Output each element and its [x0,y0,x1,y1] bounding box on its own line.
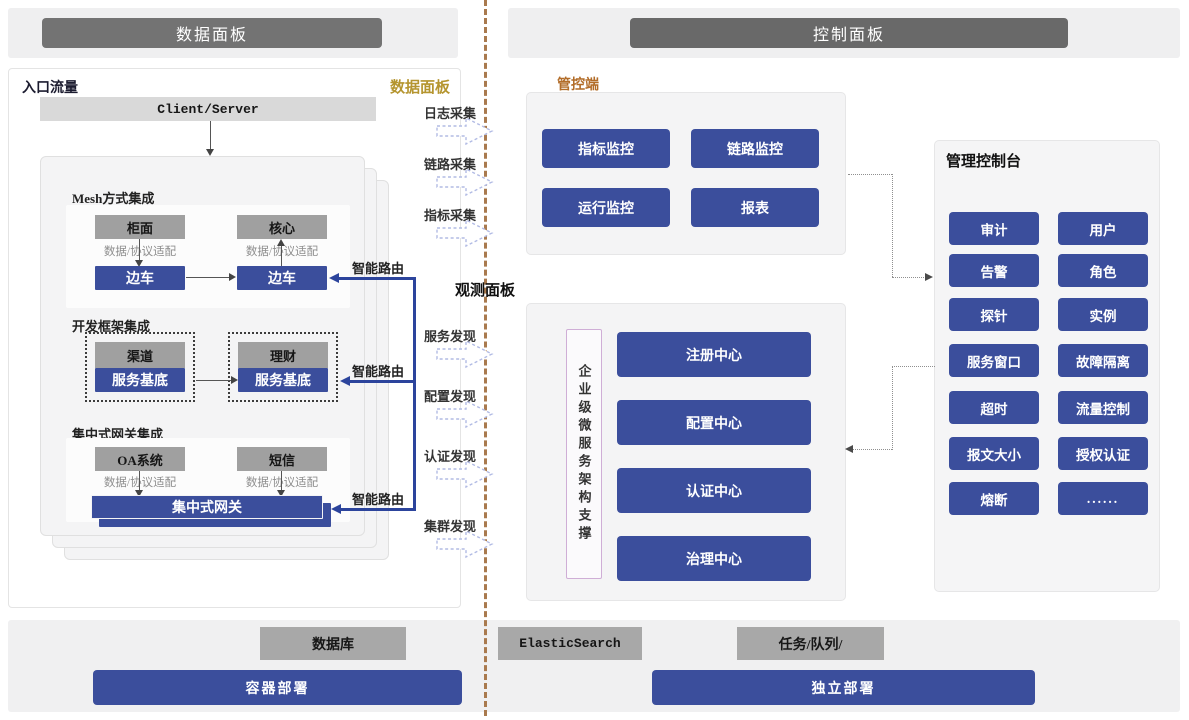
console-button-audit: 审计 [949,212,1039,245]
flow-arrow-icon [436,339,494,369]
monitor-button-runtime: 运行监控 [542,188,670,227]
center-auth: 认证中心 [617,468,811,513]
console-button-role: 角色 [1058,254,1148,287]
entry-traffic-label: 入口流量 [22,77,78,97]
console-button-fault-isolation: 故障隔离 [1058,344,1148,377]
framework-right-base-box: 服务基底 [238,368,328,392]
framework-arrow-line [196,380,232,381]
console-button-message-size: 报文大小 [949,437,1039,470]
console-button-probe: 探针 [949,298,1039,331]
flow-arrow-icon [436,167,494,197]
console-button-service-window: 服务窗口 [949,344,1039,377]
connector1-h1-line [848,174,892,175]
smart-route-trunk-line [413,277,416,510]
smart-route-branch2-head-icon [340,376,350,386]
framework-left-app-box: 渠道 [95,342,185,368]
framework-left-base-box: 服务基底 [95,368,185,392]
sidecar-right-box: 边车 [237,266,327,290]
connector2-h2-line [853,449,892,450]
mesh-app-left-box: 柜面 [95,215,185,239]
client-server-box: Client/Server [40,97,376,121]
connector2-arrow-head-icon [845,445,853,453]
mesh-down-arrow-line [139,239,140,262]
sidecar-left-box: 边车 [95,266,185,290]
flow-arrow-icon [436,218,494,248]
gateway-app-right-box: 短信 [237,447,327,471]
smart-route-label-2: 智能路由 [352,361,404,380]
gateway-adapter-left-label: 数据/协议适配 [95,474,185,490]
mesh-adapter-left-label: 数据/协议适配 [95,243,185,259]
connector2-v-line [892,366,893,450]
gateway-bar: 集中式网关 [91,495,323,519]
container-deploy-bar: 容器部署 [93,670,462,705]
mgmt-panel [526,92,846,255]
microservice-support-label: 企业级微服务架构支撑 [575,364,594,544]
console-button-alert: 告警 [949,254,1039,287]
data-plane-header: 数据面板 [42,18,382,48]
console-button-instance: 实例 [1058,298,1148,331]
client-server-arrow-head-icon [206,149,214,156]
infra-queue-box: 任务/队列/ [737,627,884,660]
connector2-h1-line [892,366,935,367]
mesh-up-arrow-head-icon [277,239,285,246]
center-governance: 治理中心 [617,536,811,581]
console-button-more: ...... [1058,482,1148,515]
flow-arrow-icon [436,459,494,489]
flow-arrow-icon [436,529,494,559]
smart-route-branch1-line [338,277,416,280]
smart-route-label-3: 智能路由 [352,489,404,508]
flow-arrow-icon [436,399,494,429]
console-title: 管理控制台 [946,150,1021,171]
gateway-adapter-right-label: 数据/协议适配 [237,474,327,490]
console-button-circuit-break: 熔断 [949,482,1039,515]
connector1-h2-line [892,277,926,278]
smart-route-branch1-head-icon [329,273,339,283]
smart-route-branch2-line [348,380,416,383]
mesh-app-right-box: 核心 [237,215,327,239]
smart-route-label-1: 智能路由 [352,258,404,277]
smart-route-branch3-line [340,508,416,511]
connector1-arrow-head-icon [925,273,933,281]
console-button-user: 用户 [1058,212,1148,245]
framework-arrow-head-icon [231,376,238,384]
monitor-button-trace: 链路监控 [691,129,819,168]
mesh-up-arrow-line [281,246,282,266]
data-plane-corner-label: 数据面板 [370,76,450,97]
console-button-timeout: 超时 [949,391,1039,424]
flow-arrow-icon [436,116,494,146]
center-config: 配置中心 [617,400,811,445]
center-registry: 注册中心 [617,332,811,377]
sidecar-arrow-head-icon [229,273,236,281]
microservice-support-box: 企业级微服务架构支撑 [566,329,602,579]
monitor-button-report: 报表 [691,188,819,227]
gateway-app-left-box: OA系统 [95,447,185,471]
console-button-flow-control: 流量控制 [1058,391,1148,424]
monitor-button-metrics: 指标监控 [542,129,670,168]
diagram-stage: 数据面板 控制面板 入口流量 数据面板 Client/Server Mesh方式… [0,0,1189,720]
infra-database-box: 数据库 [260,627,406,660]
observe-panel-label: 观测面板 [455,279,515,300]
smart-route-branch3-head-icon [331,504,341,514]
client-server-arrow-line [210,121,211,150]
mgmt-side-label: 管控端 [557,74,599,94]
infra-elasticsearch-box: ElasticSearch [498,627,642,660]
standalone-deploy-bar: 独立部署 [652,670,1035,705]
connector1-v-line [892,174,893,277]
control-plane-header: 控制面板 [630,18,1068,48]
console-button-authz: 授权认证 [1058,437,1148,470]
sidecar-arrow-line [186,277,230,278]
framework-right-app-box: 理财 [238,342,328,368]
